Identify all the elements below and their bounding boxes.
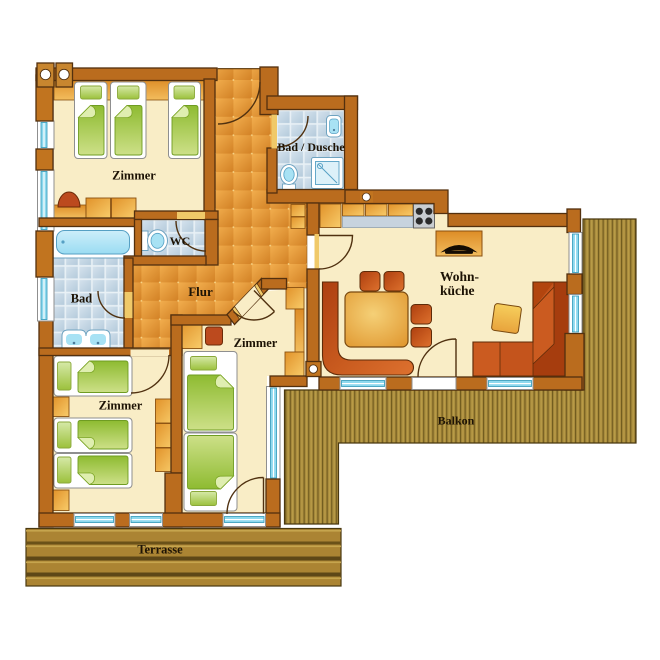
svg-text:Terrasse: Terrasse xyxy=(137,543,183,557)
svg-text:küche: küche xyxy=(440,283,475,298)
svg-text:Zimmer: Zimmer xyxy=(234,336,278,350)
svg-text:Flur: Flur xyxy=(188,284,213,299)
svg-text:Bad / Dusche: Bad / Dusche xyxy=(277,140,345,154)
svg-text:Wohn-: Wohn- xyxy=(440,269,479,284)
svg-text:Zimmer: Zimmer xyxy=(112,169,156,183)
svg-text:WC: WC xyxy=(170,234,191,248)
svg-text:Bad: Bad xyxy=(71,292,93,306)
svg-text:Zimmer: Zimmer xyxy=(99,399,143,413)
svg-text:Balkon: Balkon xyxy=(438,414,475,428)
